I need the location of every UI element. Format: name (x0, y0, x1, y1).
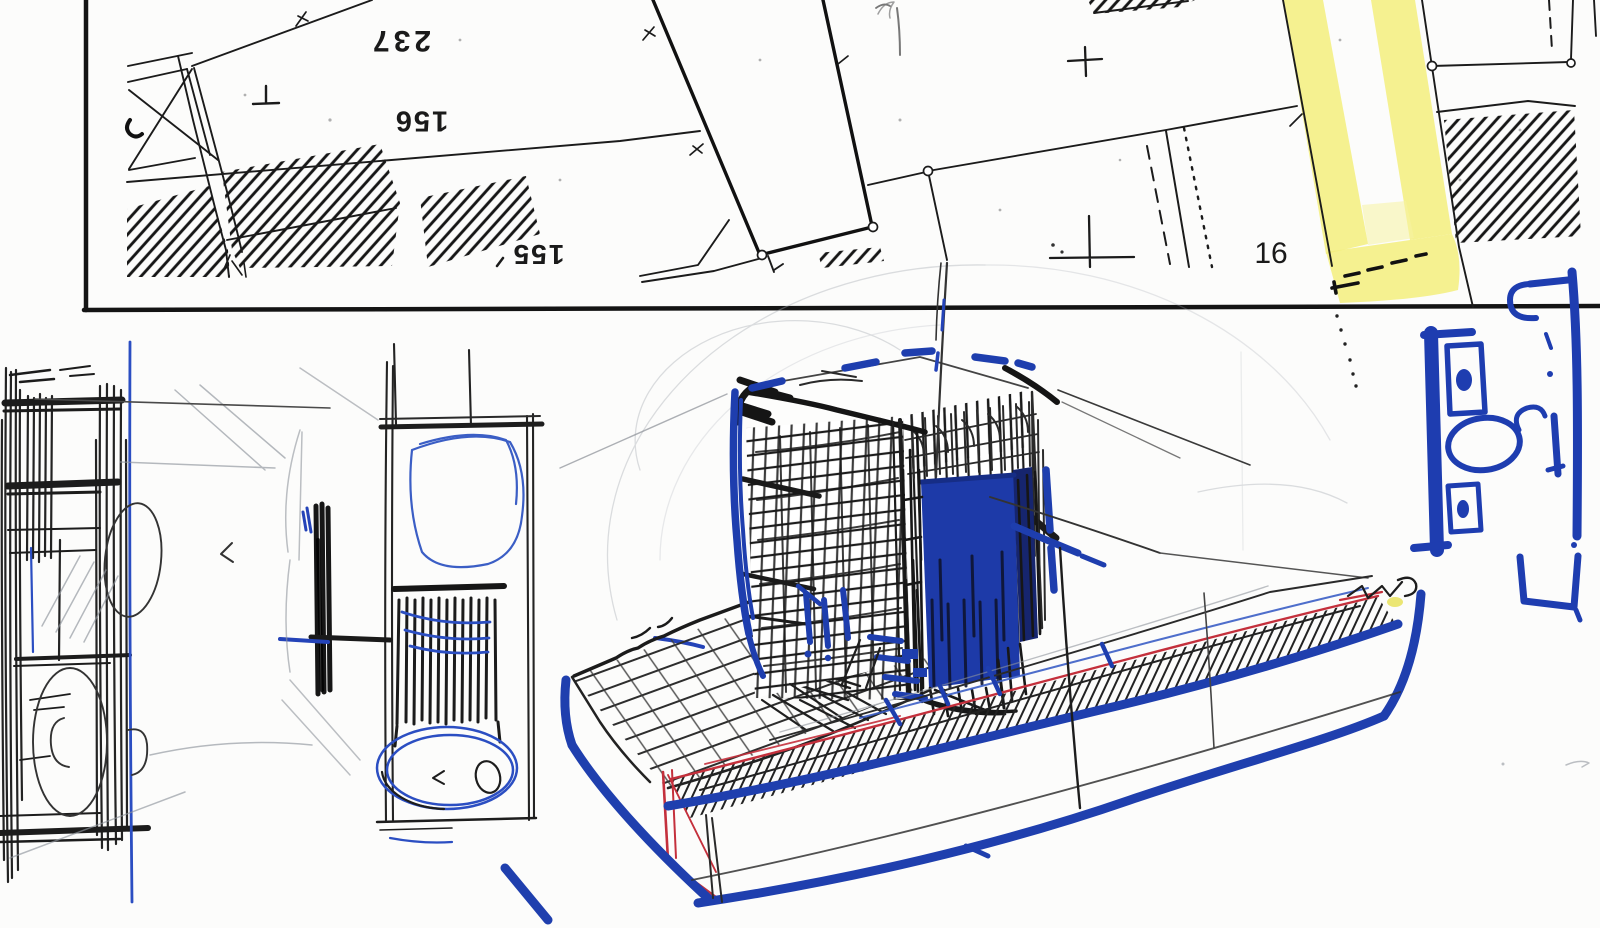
svg-text:16: 16 (1254, 237, 1287, 270)
svg-text:156: 156 (394, 105, 448, 137)
svg-text:155: 155 (512, 239, 565, 270)
svg-text:237: 237 (369, 24, 431, 57)
